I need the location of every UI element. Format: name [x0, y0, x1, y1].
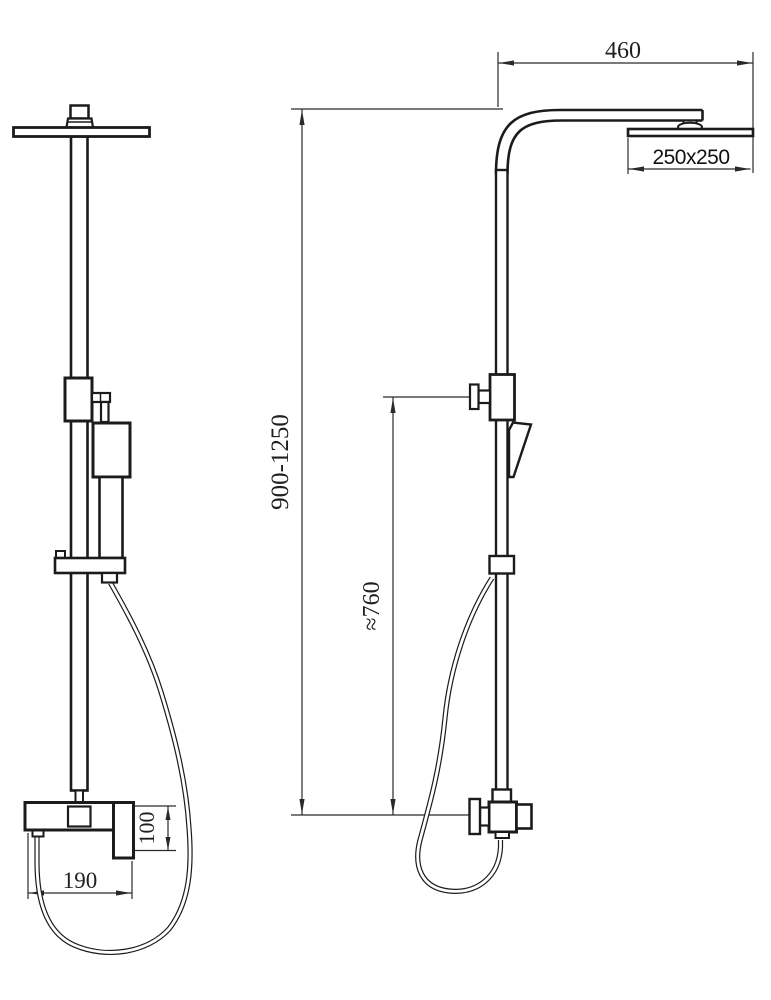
ceiling-connector-front [71, 106, 89, 119]
slider-knob-stem-side [479, 391, 491, 404]
mixer-handle-stem-side [480, 808, 489, 826]
column-lower-neck-front [76, 791, 84, 803]
dim-mixer-width-label: 190 [63, 868, 98, 893]
side-view [418, 110, 753, 891]
slider-block-side [490, 375, 515, 421]
overhead-shower-plate-front [14, 128, 150, 137]
riser-column-front [71, 137, 88, 791]
slider-knob-side [470, 385, 479, 410]
slider-block-front [65, 378, 92, 421]
arrow-up-icon [390, 398, 395, 413]
arrow-right-icon [737, 60, 752, 65]
shower-system-diagram: 460 250x250 900-1250 ≈760 100 190 [0, 0, 771, 1000]
dimension-annotations [28, 52, 753, 899]
slide-bracket-front [55, 558, 125, 573]
arrow-left-icon [499, 60, 514, 65]
arrow-down-icon [299, 799, 304, 814]
arrow-right-icon [735, 166, 750, 171]
arrow-down-icon [390, 799, 395, 814]
shower-hose-front [37, 583, 190, 952]
arrow-up-icon [299, 110, 304, 125]
dim-column-height [291, 109, 503, 815]
hand-shower-handle-front [100, 477, 123, 558]
mixer-handle-disc-side [470, 799, 481, 834]
arrow-right-icon [116, 890, 131, 895]
mixer-handle-front [114, 803, 134, 859]
hand-shower-side [509, 423, 531, 478]
dim-head-size-label: 250x250 [652, 146, 729, 169]
dim-hand-shower-height [383, 397, 470, 815]
dim-column-height-label: 900-1250 [267, 414, 294, 510]
front-view [14, 106, 191, 953]
arrow-left-icon [629, 166, 644, 171]
overhead-shower-plate-side [628, 129, 753, 136]
dim-mixer-height-label: 100 [134, 812, 159, 845]
hand-shower-inlet-front [102, 573, 117, 583]
technical-drawing-page: 460 250x250 900-1250 ≈760 100 190 [0, 0, 771, 1000]
hose-outlet-side [496, 832, 510, 838]
mixer-center-union-front [68, 807, 91, 827]
hand-shower-head-front [93, 423, 130, 477]
dim-arm-reach-label: 460 [605, 38, 641, 64]
arrow-down-icon [166, 837, 171, 850]
mixer-body-side [489, 802, 517, 832]
riser-column-side [496, 170, 508, 790]
diverter-lever-vertical [101, 402, 109, 422]
shower-hose-side [418, 578, 501, 891]
column-connector-side [490, 556, 515, 574]
dim-hand-shower-height-label: ≈760 [359, 581, 385, 630]
mixer-right-block-side [517, 805, 532, 829]
arrow-up-icon [166, 807, 171, 820]
